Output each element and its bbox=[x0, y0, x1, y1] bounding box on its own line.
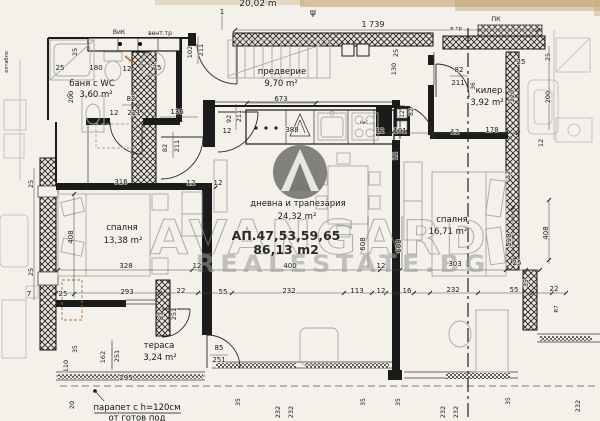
dimension-label: 25 bbox=[27, 180, 35, 188]
dimension-label: 211 bbox=[197, 44, 205, 56]
dimension-label: 20,02 m bbox=[239, 0, 276, 9]
dimension-label: 25 bbox=[392, 49, 400, 57]
dimension-label: 12 bbox=[193, 262, 202, 270]
dimension-label: 25 bbox=[59, 290, 68, 298]
watermark-domain: REALESTATE.BG bbox=[196, 250, 491, 278]
dimension-label: 25 bbox=[513, 259, 522, 267]
dimension-label: 1 bbox=[220, 8, 224, 16]
dimension-label: 12 bbox=[214, 179, 223, 187]
room-label-hall: предверие bbox=[258, 67, 306, 77]
dimension-label: 35 bbox=[72, 345, 79, 353]
dimension-label: 200 bbox=[544, 91, 552, 103]
fire-hydrant-box bbox=[478, 25, 542, 36]
dimension-label: 12 bbox=[537, 139, 545, 147]
dimension-label: 55 bbox=[219, 288, 228, 296]
dimension-label: 102 bbox=[186, 46, 194, 58]
dimension-label: 180 bbox=[89, 64, 102, 72]
dimension-label: 16 bbox=[403, 287, 412, 295]
dimension-label: 85 bbox=[215, 344, 224, 352]
dimension-label: 12 bbox=[223, 127, 232, 135]
dimension-label: вент.тр bbox=[148, 30, 172, 37]
dimension-label: 400 bbox=[283, 262, 296, 270]
dimension-label: R7 bbox=[554, 305, 560, 313]
dimension-label: 12 bbox=[399, 110, 406, 118]
dimension-label: 232 bbox=[287, 406, 295, 418]
dimension-label: 25 bbox=[27, 268, 35, 276]
dimension-label: 232 bbox=[452, 406, 460, 418]
dimension-label: 35 bbox=[523, 279, 530, 287]
dimension-label: 211 bbox=[127, 109, 140, 117]
dimension-label: 232 bbox=[446, 286, 459, 294]
dimension-label: 92 bbox=[225, 115, 233, 123]
dimension-label: 12 bbox=[110, 109, 119, 117]
dimension-label: 101 bbox=[393, 127, 406, 135]
dimension-label: 408 bbox=[67, 230, 75, 243]
dimension-label: 162 bbox=[99, 351, 107, 363]
dimension-label: 110 bbox=[62, 360, 70, 372]
dimension-label: 12 bbox=[376, 127, 385, 135]
dimension-label: 136 bbox=[170, 108, 184, 116]
room-label-terrace: тераса bbox=[144, 341, 175, 351]
dimension-label: 25 bbox=[517, 58, 526, 66]
dimension-label: 22 bbox=[550, 285, 559, 293]
dimension-label: 608 bbox=[395, 239, 403, 252]
dimension-label: елтабло bbox=[4, 51, 10, 73]
room-area-terrace: 3,24 m² bbox=[143, 353, 176, 363]
dimension-label: 82 bbox=[161, 144, 169, 152]
dimension-label: 232 bbox=[439, 406, 447, 418]
dimension-label: 36 bbox=[470, 82, 477, 90]
scan-edge-artifact bbox=[594, 0, 600, 16]
dimension-label: 7 bbox=[27, 290, 31, 298]
dimension-label: 75 bbox=[153, 64, 162, 72]
dimension-label: НиС bbox=[360, 120, 369, 125]
dimension-label: 232 bbox=[574, 400, 582, 412]
dimension-label: ψ bbox=[310, 8, 316, 18]
dimension-label: 316 bbox=[114, 178, 128, 186]
dimension-label: 87 bbox=[157, 312, 165, 320]
room-area-hall: 9,70 m² bbox=[264, 79, 297, 89]
dimension-label: 608 bbox=[359, 237, 367, 250]
dimension-label: 35 bbox=[360, 398, 367, 406]
dimension-label: 518 bbox=[505, 233, 513, 246]
dimension-label: 211 bbox=[235, 110, 243, 122]
floor-plan-svg: AVANGARD REALESTATE.BG баня с WC пс 3,60… bbox=[0, 0, 600, 421]
room-label-bathroom: баня с WC bbox=[69, 79, 115, 89]
dimension-label: ВиК bbox=[113, 29, 126, 36]
dimension-label: 12 bbox=[504, 171, 512, 179]
dimension-label: 178 bbox=[485, 126, 498, 134]
room-area-bedroom1: 13,38 m² bbox=[104, 236, 143, 246]
dimension-label: 82 bbox=[455, 66, 464, 74]
room-label-bedroom2: спалня bbox=[436, 215, 468, 225]
room-label-storage: килер bbox=[476, 86, 503, 96]
dimension-label: в.тр. bbox=[450, 26, 464, 32]
dimension-label: 12 bbox=[123, 65, 132, 73]
dimension-label: 1 739 bbox=[362, 20, 385, 29]
dimension-label: 35 bbox=[395, 398, 402, 406]
dimension-label: 232 bbox=[282, 287, 295, 295]
dimension-label: 220 bbox=[508, 90, 516, 102]
room-area-bedroom2: 16,71 m² bbox=[429, 227, 468, 237]
dimension-label: 130 bbox=[390, 63, 398, 75]
floor-plan-scan: AVANGARD REALESTATE.BG баня с WC пс 3,60… bbox=[0, 0, 600, 421]
dimension-label: 295 bbox=[119, 374, 132, 382]
dimension-label: 82 bbox=[408, 108, 415, 116]
dimension-label: 12 bbox=[377, 262, 386, 270]
dimension-label: 12 bbox=[451, 128, 460, 136]
dimension-label: 328 bbox=[119, 262, 132, 270]
dimension-label: 200 bbox=[67, 91, 75, 103]
dimension-label: 251 bbox=[113, 350, 121, 362]
dimension-label: 211 bbox=[451, 79, 464, 87]
scan-edge-artifact bbox=[455, 0, 600, 11]
dimension-label: 251 bbox=[170, 308, 178, 320]
plumbing-shaft bbox=[88, 38, 180, 51]
apartment-area: 86,13 m2 bbox=[253, 242, 319, 257]
room-area-storage: 3,92 m² bbox=[470, 98, 503, 108]
dimension-label: 35 bbox=[505, 397, 512, 405]
room-label-bedroom1: спалня bbox=[106, 223, 138, 233]
dimension-label: 388 bbox=[285, 126, 298, 134]
dimension-label: 293 bbox=[120, 288, 133, 296]
apartment-number: АП.47,53,59,65 bbox=[232, 228, 341, 243]
dimension-label: 113 bbox=[350, 287, 363, 295]
room-area-bathroom: 3,60 m² bbox=[79, 90, 112, 100]
parapet-note-line2: от готов под bbox=[108, 414, 165, 421]
room-label-living: дневна и трапезария bbox=[250, 199, 345, 209]
dimension-label: 673 bbox=[274, 95, 287, 103]
dimension-label: 303 bbox=[448, 260, 461, 268]
scan-edge-artifact bbox=[155, 0, 305, 5]
dimension-label: 232 bbox=[274, 406, 282, 418]
dimension-label: 55 bbox=[510, 286, 519, 294]
dimension-label: 211 bbox=[173, 140, 181, 152]
dimension-label: 35 bbox=[235, 398, 242, 406]
dimension-label: 25 bbox=[71, 48, 79, 56]
dimension-label: 25 bbox=[56, 64, 65, 72]
dimension-label: 408 bbox=[542, 226, 550, 239]
dimension-label: 20 bbox=[68, 401, 76, 409]
dimension-label: ПК bbox=[491, 15, 501, 23]
dimension-label: 12 bbox=[391, 152, 399, 160]
parapet-note-line1: парапет с h=120см bbox=[93, 403, 180, 413]
dimension-label: 22 bbox=[177, 287, 186, 295]
dimension-label: 25 bbox=[544, 53, 552, 61]
room-area-living: 24,32 m² bbox=[278, 212, 317, 222]
dimension-label: 82 bbox=[127, 95, 136, 103]
dimension-label: 12 bbox=[377, 287, 386, 295]
dimension-label: 12 bbox=[187, 179, 196, 187]
dimension-label: 251 bbox=[212, 356, 225, 364]
